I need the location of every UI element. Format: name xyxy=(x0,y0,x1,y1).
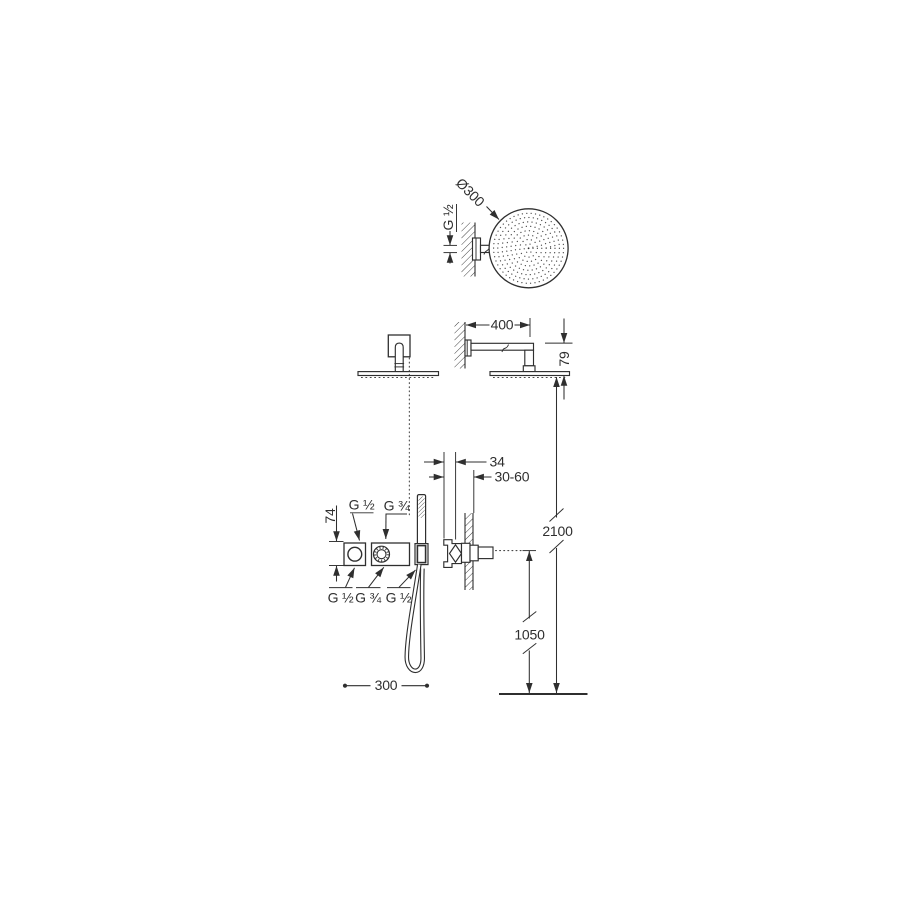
handshower-offset-dim: 300 xyxy=(375,677,398,693)
mixer-knob xyxy=(374,546,390,562)
height-valve-dim: 1050 xyxy=(514,627,545,643)
height-dimensions: 2100 1050 xyxy=(499,377,588,694)
head-connection-label: G ½ xyxy=(440,204,456,230)
head-nut xyxy=(523,366,535,372)
technical-drawing-page: Ø300 G ½ 400 79 xyxy=(0,0,900,900)
shutoff-knob xyxy=(348,547,362,561)
head-diameter-label: Ø300 xyxy=(453,175,488,210)
shower-hose xyxy=(407,565,423,671)
outlet-bottom-right-label: G ½ xyxy=(386,590,412,606)
handle-grip-texture xyxy=(418,496,424,518)
valve-depth-dim: 34 xyxy=(490,454,506,470)
valve-body-ring xyxy=(462,543,471,562)
arm-length-dim: 400 xyxy=(491,317,514,333)
trim-height-dim: 74 xyxy=(322,508,338,524)
inlet-top-left-label: G ½ xyxy=(349,497,375,513)
head-offset-dim: 79 xyxy=(556,351,572,367)
shower-installation-drawing: Ø300 G ½ 400 79 xyxy=(0,0,900,900)
shower-arm xyxy=(471,343,534,350)
outlet-bottom-center-label: G ¾ xyxy=(355,590,381,606)
valve-nut xyxy=(470,545,478,561)
valve-stem xyxy=(478,547,493,559)
shower-head-front-subview xyxy=(358,335,439,517)
shower-arm-side-view: 400 79 xyxy=(455,317,573,400)
inlet-top-right-label: G ¾ xyxy=(384,498,410,514)
arm-elbow xyxy=(525,350,534,366)
wall-flange xyxy=(465,340,471,356)
offset-300-dimension: 300 xyxy=(343,677,429,693)
height-total-dim: 2100 xyxy=(542,523,573,539)
head-disc-edge xyxy=(490,372,570,376)
hand-shower xyxy=(407,495,428,671)
wall-flange xyxy=(473,238,481,260)
overhead-shower-front-view: Ø300 G ½ xyxy=(440,175,568,288)
diameter-leader xyxy=(487,207,500,220)
mixer-front-view: 74 G ½ G ¾ G ½ G ¾ G ½ xyxy=(322,495,429,693)
install-depth-range-dim: 30-60 xyxy=(495,469,530,485)
valve-side-view: 34 30-60 xyxy=(424,452,536,590)
outlet-bottom-left-label: G ½ xyxy=(328,590,354,606)
head-disc-edge xyxy=(358,372,439,376)
wall-hatch xyxy=(455,322,466,369)
